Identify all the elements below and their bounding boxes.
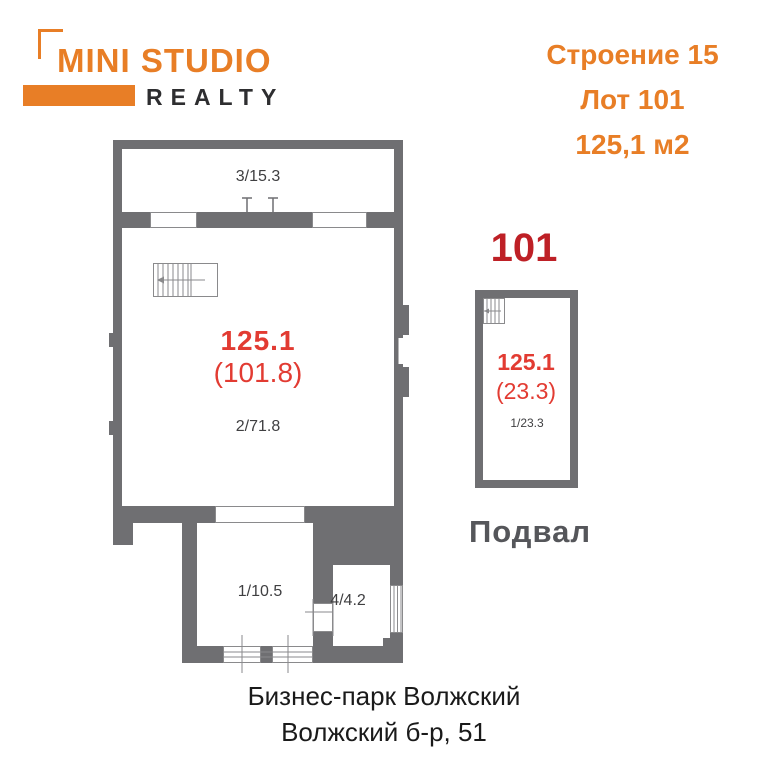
logo-text-secondary: REALTY: [146, 84, 284, 111]
basement-area-detail: (23.3): [466, 378, 586, 405]
window-icon: [313, 213, 367, 228]
basement-lot-number: 101: [464, 226, 584, 271]
header-building: Строение 15: [505, 32, 760, 77]
logo-orange-bar: [23, 85, 135, 106]
logo-text-primary: MINI STUDIO: [57, 42, 272, 80]
room3-label: 3/15.3: [158, 168, 358, 186]
address-line1: Бизнес-парк Волжский: [0, 678, 768, 714]
stairs-icon: [483, 298, 505, 324]
header-lot: Лот 101: [505, 77, 760, 122]
window-icon: [216, 507, 305, 523]
address-line2: Волжский б-р, 51: [0, 714, 768, 750]
basement-area-total: 125.1: [466, 349, 586, 376]
door-t-icon: [242, 198, 278, 212]
window-icon: [151, 213, 197, 228]
basement-caption: Подвал: [450, 514, 610, 550]
room4-label: 4/4.2: [288, 592, 408, 610]
listing-header: Строение 15 Лот 101 125,1 м2: [505, 32, 760, 167]
room2-label: 2/71.8: [158, 418, 358, 436]
basement-room-label: 1/23.3: [467, 416, 587, 430]
stairs-icon: [154, 263, 218, 297]
window-icon: [273, 647, 313, 663]
flyer-page: MINI STUDIO REALTY Строение 15 Лот 101 1…: [0, 0, 768, 768]
main-area-total: 125.1: [158, 325, 358, 357]
main-area-detail: (101.8): [158, 357, 358, 389]
wall-recess: [399, 338, 404, 364]
address-block: Бизнес-парк Волжский Волжский б-р, 51: [0, 678, 768, 750]
header-area: 125,1 м2: [505, 122, 760, 167]
